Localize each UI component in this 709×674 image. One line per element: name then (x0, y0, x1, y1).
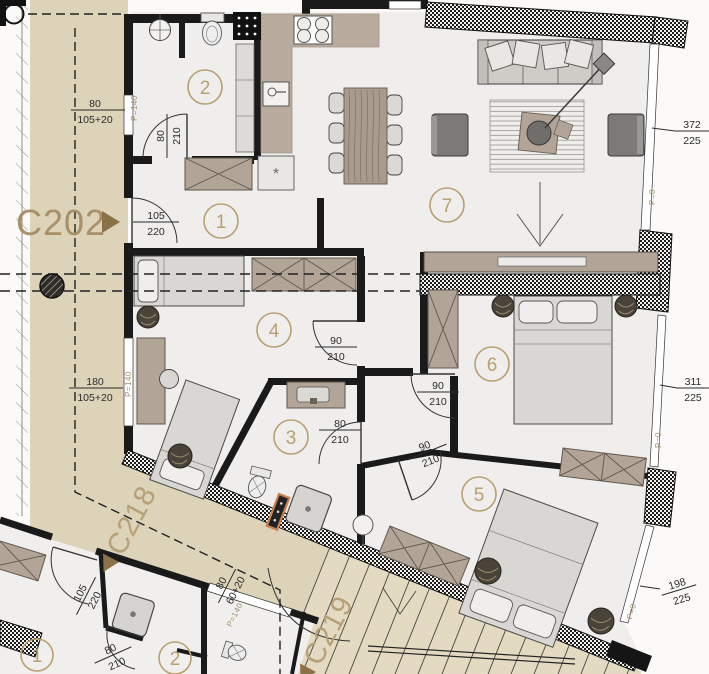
svg-text:210: 210 (331, 434, 349, 446)
plant (588, 608, 614, 634)
svg-text:105: 105 (147, 210, 165, 222)
svg-text:180: 180 (86, 376, 104, 388)
sofa-armrest-left (478, 40, 488, 84)
unit-label-c202: C202 (16, 202, 106, 243)
lower-room-number-2: 2 (170, 649, 181, 670)
sideboard-slot (498, 257, 586, 266)
plant (492, 295, 514, 317)
toilet-bath2 (203, 21, 222, 45)
lower-room-number-1: 1 (32, 646, 43, 667)
armchair-right-back (637, 116, 643, 154)
armchair-left (432, 114, 468, 156)
room-number-6: 6 (487, 355, 498, 376)
svg-text:225: 225 (683, 135, 701, 147)
svg-text:210: 210 (327, 351, 345, 363)
plant (137, 306, 159, 328)
room-number-5: 5 (474, 485, 485, 506)
plant (475, 558, 501, 584)
floor-plan-canvas: * (0, 0, 709, 674)
bed-room4-pillow (138, 260, 158, 302)
room-number-4: 4 (269, 321, 280, 342)
vent-symbol: * (273, 166, 279, 183)
room-number-2: 2 (200, 78, 211, 99)
svg-text:80: 80 (334, 418, 346, 430)
level-label-4: P=0 (654, 432, 663, 448)
level-label-3: P=0 (648, 189, 657, 205)
svg-text:80: 80 (89, 98, 101, 110)
bed6-pillow-right (557, 301, 597, 323)
svg-text:372: 372 (683, 119, 701, 131)
svg-text:311: 311 (685, 376, 702, 388)
armchair-left-back (431, 116, 437, 154)
svg-text:80: 80 (155, 130, 167, 142)
svg-text:105+20: 105+20 (77, 392, 112, 404)
level-label-0: P=140 (130, 95, 139, 121)
level-label-1: P=140 (124, 371, 133, 397)
desk-chair (160, 370, 179, 389)
room-number-7: 7 (442, 196, 453, 217)
washbasin-room3 (353, 515, 373, 535)
svg-text:225: 225 (684, 392, 702, 404)
plant (615, 295, 637, 317)
column (40, 274, 64, 298)
floor-plan-drawing: * (0, 0, 709, 674)
svg-text:210: 210 (429, 396, 447, 408)
svg-text:105+20: 105+20 (77, 114, 112, 126)
tall-cabinets (236, 44, 254, 152)
room-number-1: 1 (216, 212, 227, 233)
room-number-3: 3 (286, 428, 297, 449)
plant (168, 444, 192, 468)
svg-text:220: 220 (147, 226, 165, 238)
svg-text:90: 90 (432, 380, 444, 392)
dining-table (344, 88, 387, 184)
vanity-tap (310, 398, 317, 404)
svg-text:90: 90 (330, 335, 342, 347)
bed6-pillow-left (519, 301, 553, 323)
svg-text:210: 210 (171, 127, 183, 145)
